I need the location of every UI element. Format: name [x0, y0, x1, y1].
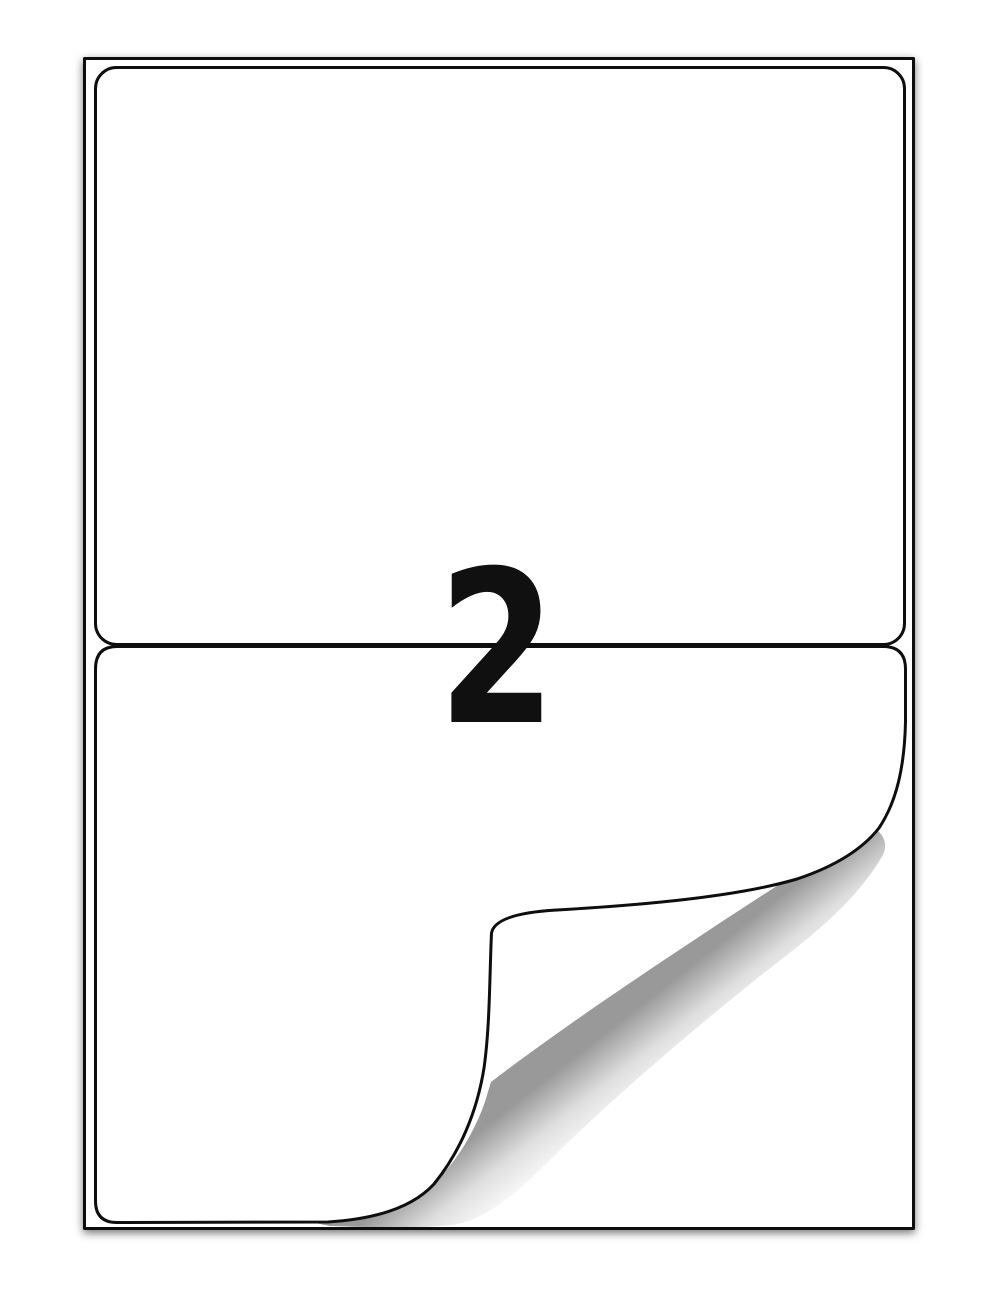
labels-per-sheet-count: 2 [438, 527, 556, 773]
label-sheet-graphic: 2 [0, 0, 1000, 1292]
label-sheet-product-image: 2 [0, 0, 1000, 1292]
